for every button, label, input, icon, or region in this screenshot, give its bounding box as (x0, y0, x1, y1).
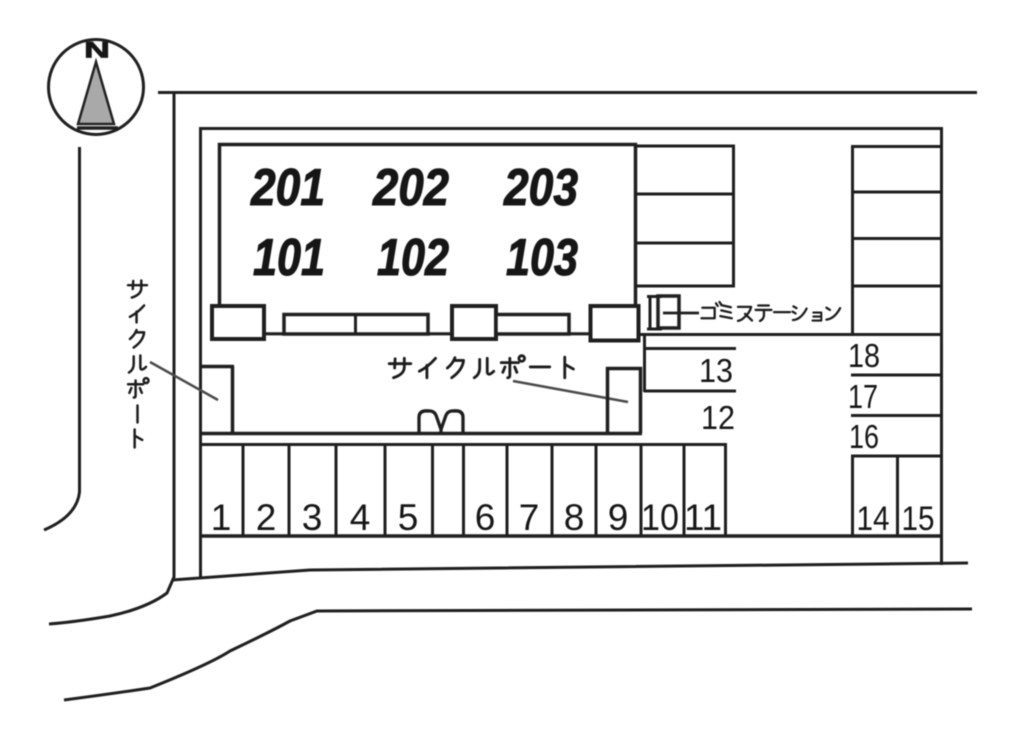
svg-text:1: 1 (211, 497, 232, 538)
svg-text:16: 16 (849, 418, 879, 455)
svg-text:N: N (84, 38, 110, 63)
svg-text:2: 2 (256, 497, 277, 538)
svg-text:18: 18 (848, 337, 880, 374)
svg-text:201: 201 (250, 159, 325, 217)
svg-text:17: 17 (848, 378, 878, 415)
svg-text:6: 6 (475, 497, 496, 538)
svg-text:202: 202 (372, 159, 449, 217)
svg-text:7: 7 (519, 497, 540, 538)
svg-text:3: 3 (302, 497, 323, 538)
svg-text:15: 15 (902, 500, 935, 538)
svg-text:12: 12 (701, 399, 735, 436)
svg-text:13: 13 (699, 352, 733, 389)
svg-text:8: 8 (564, 497, 585, 538)
svg-text:102: 102 (377, 229, 449, 287)
svg-text:9: 9 (608, 497, 629, 538)
svg-text:203: 203 (503, 159, 578, 217)
svg-text:10: 10 (641, 497, 679, 538)
svg-text:14: 14 (857, 500, 890, 538)
svg-text:4: 4 (350, 497, 371, 538)
svg-text:11: 11 (684, 497, 722, 538)
svg-text:101: 101 (253, 229, 325, 287)
svg-text:103: 103 (506, 229, 578, 287)
svg-text:5: 5 (398, 497, 419, 538)
